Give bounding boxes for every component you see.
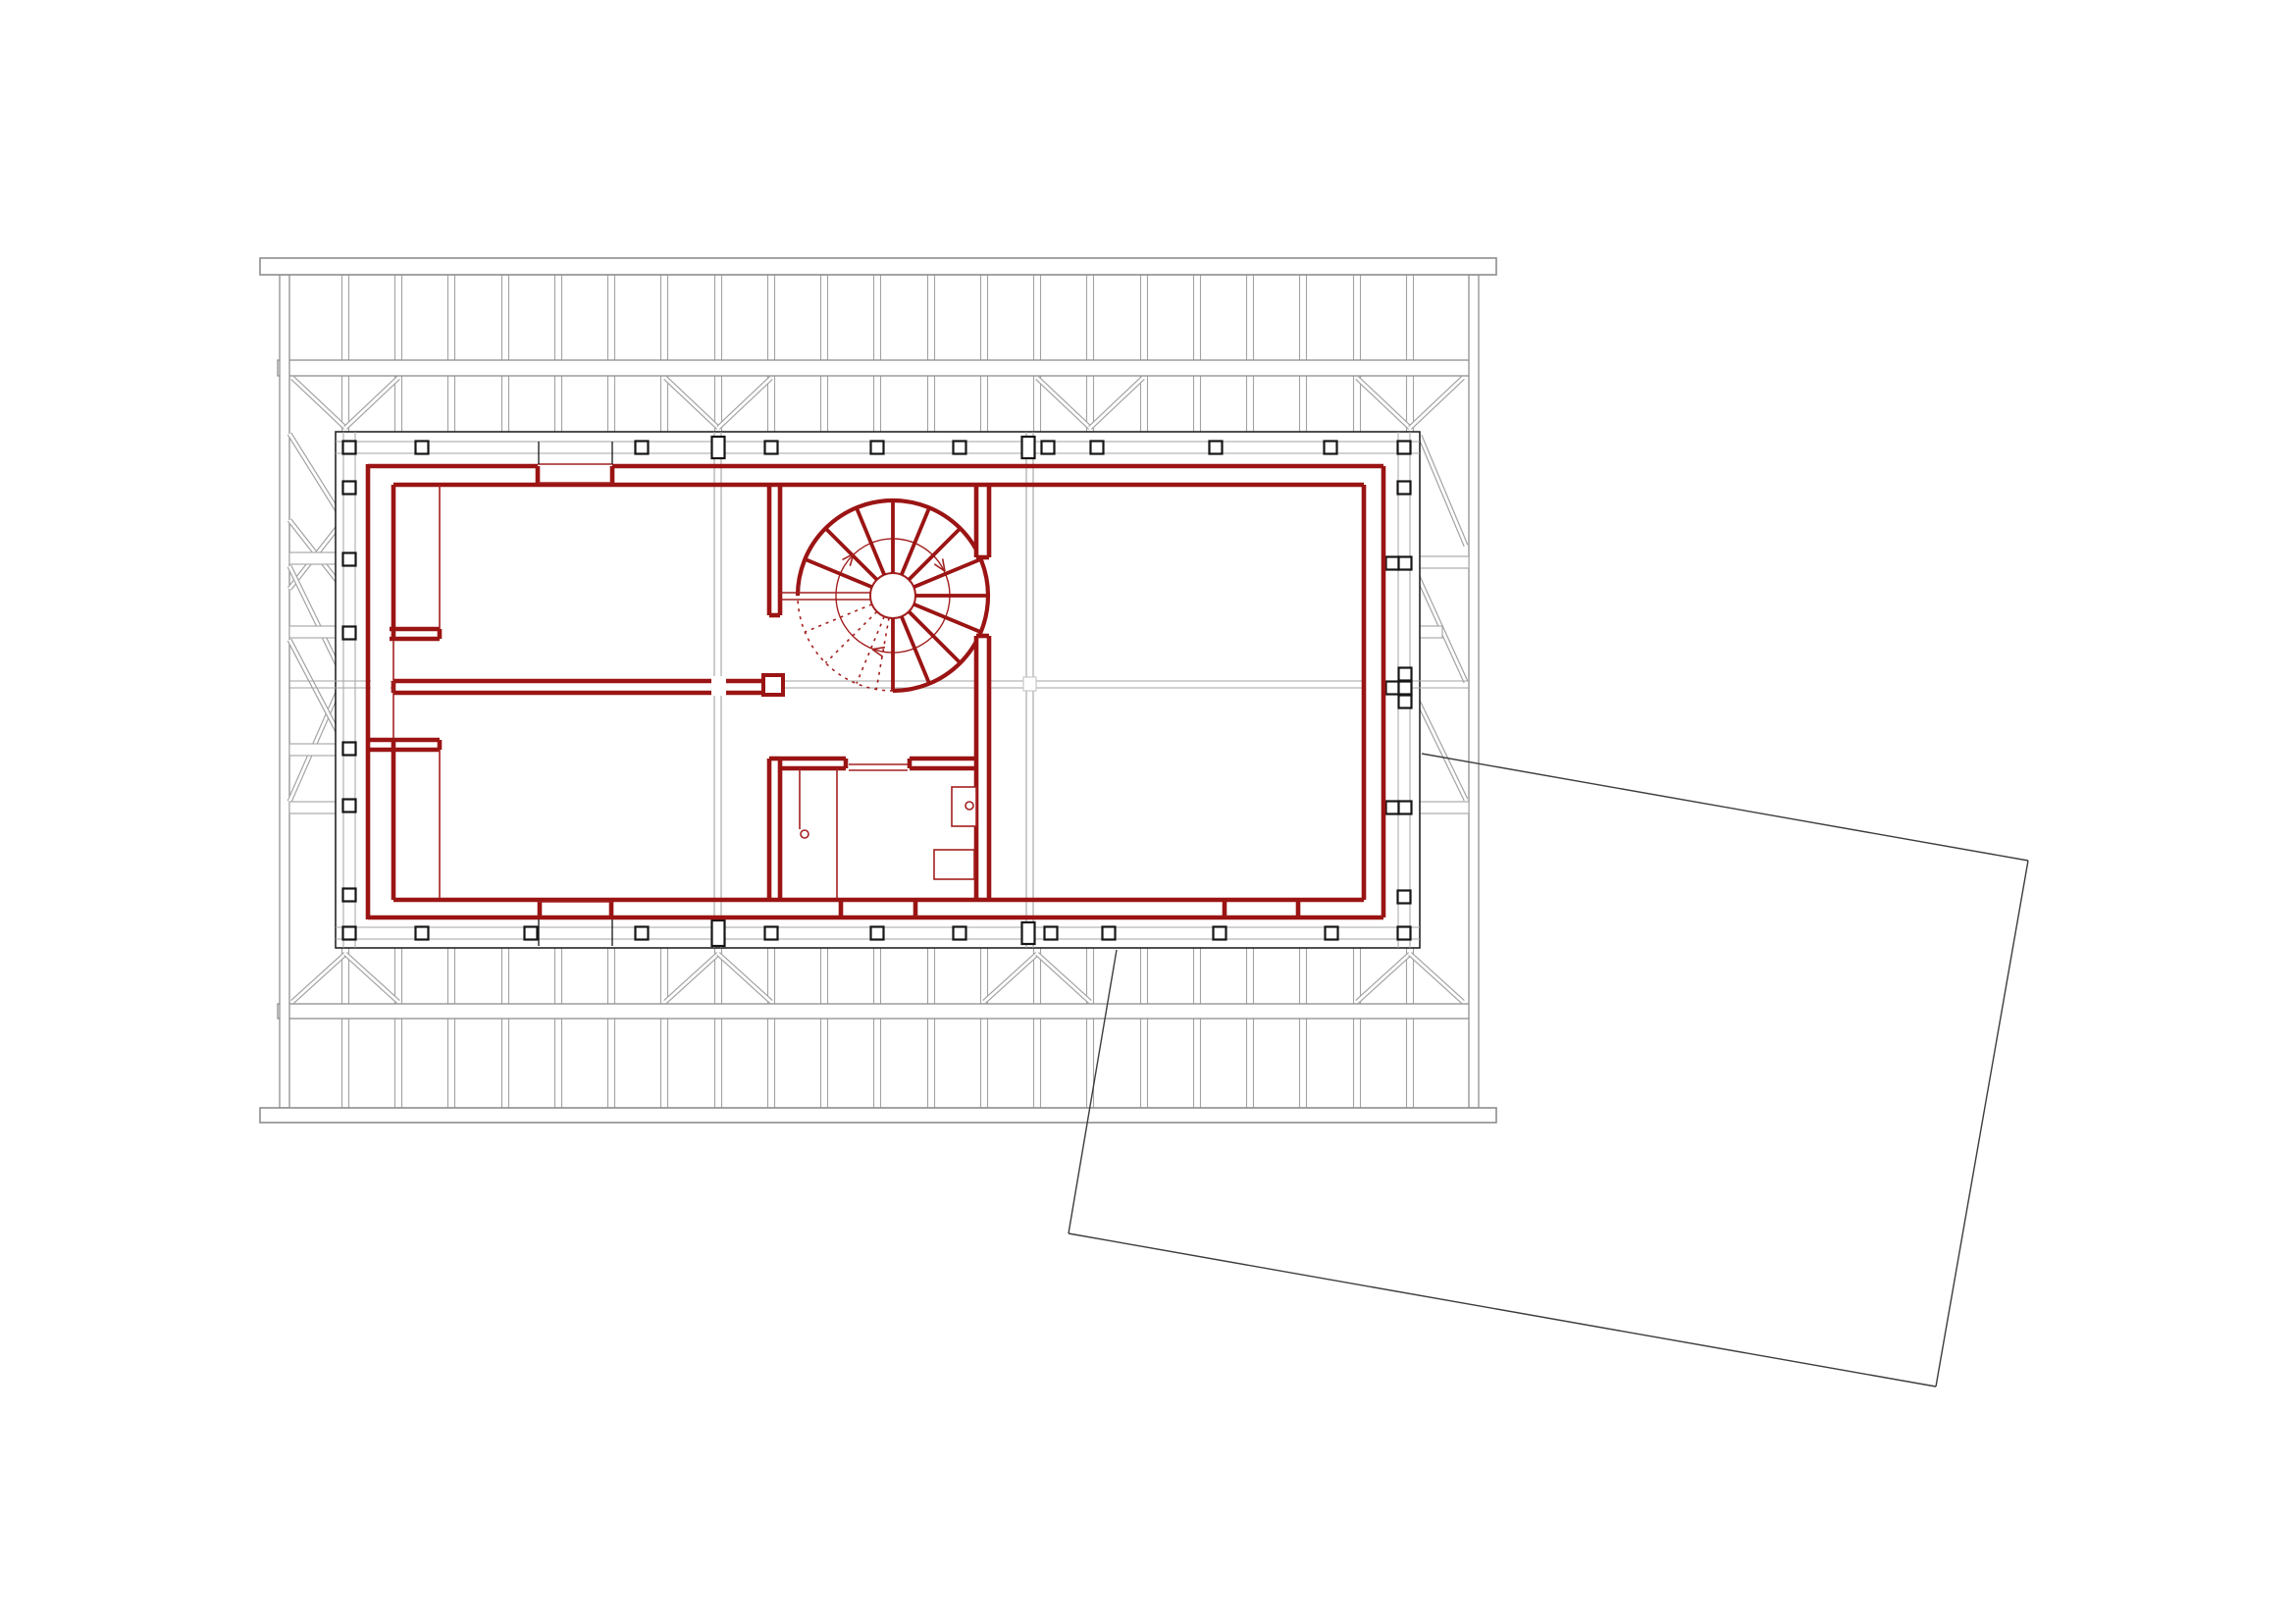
drawing-canvas	[0, 0, 2295, 1624]
floor-plan-drawing	[0, 0, 2295, 1624]
